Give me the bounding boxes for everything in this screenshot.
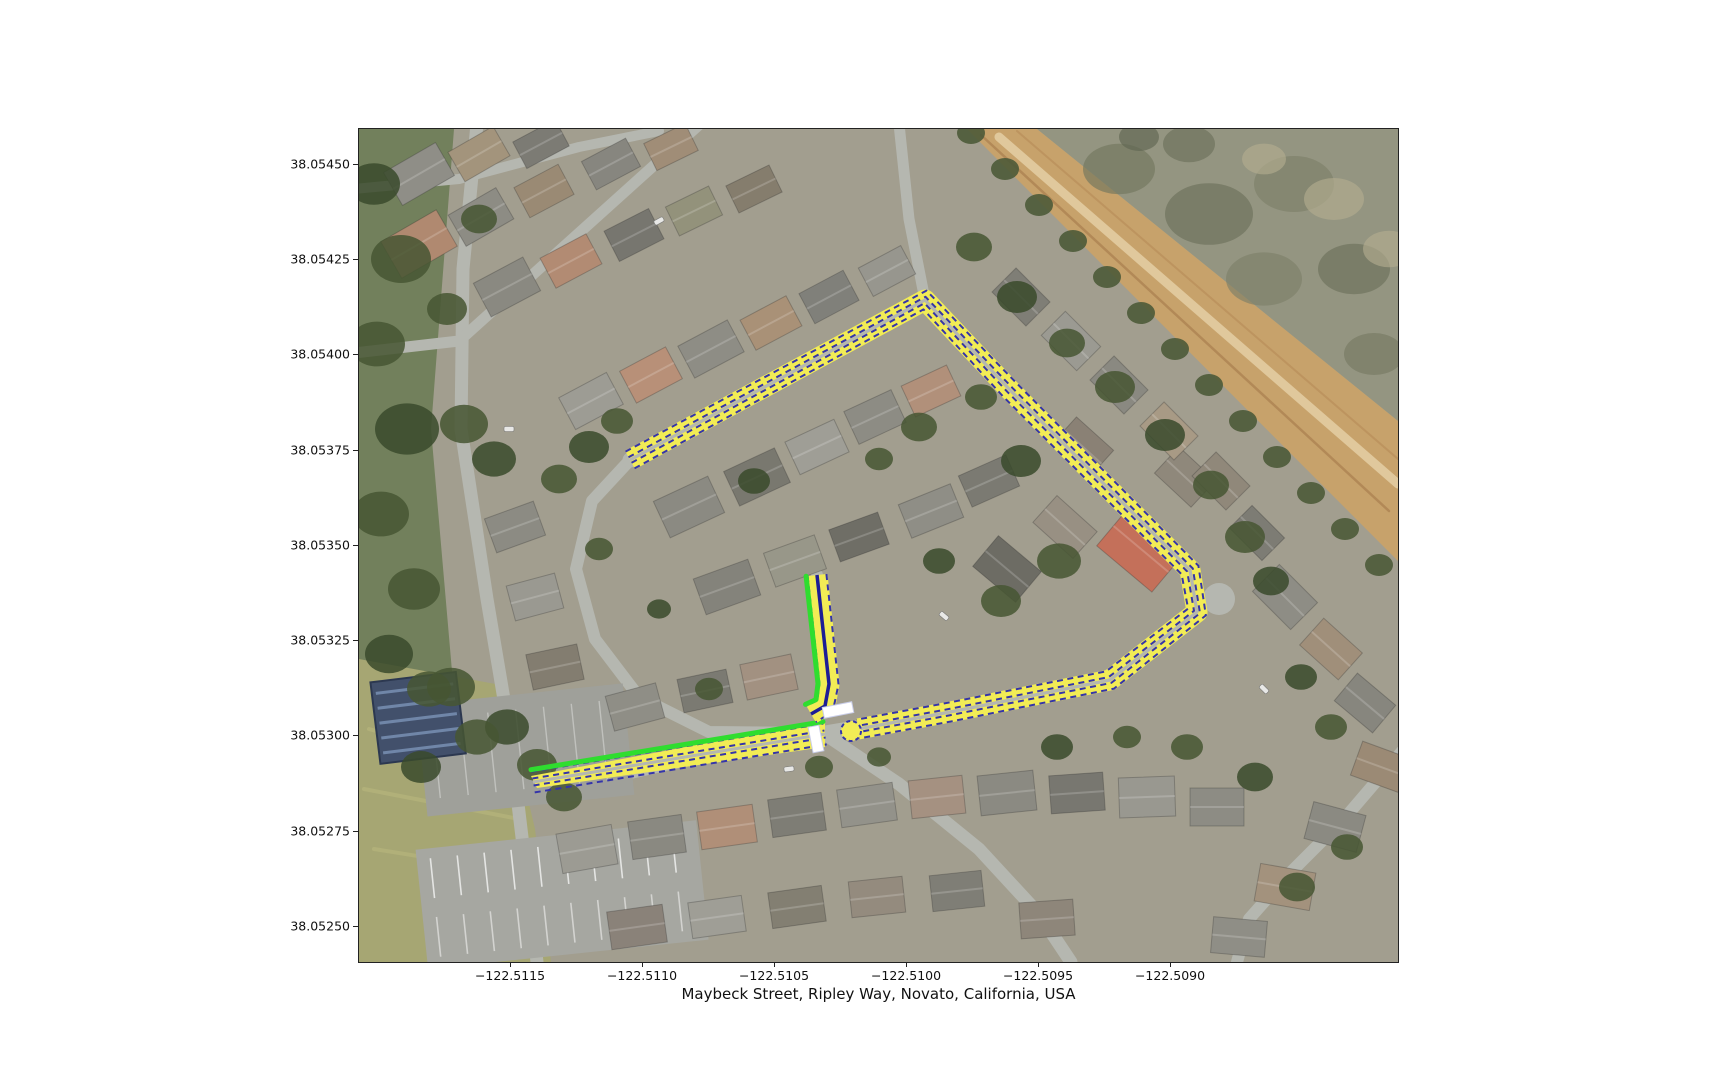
figure-canvas: −122.5115−122.5110−122.5105−122.5100−122…: [0, 0, 1714, 1080]
y-tick-label: 38.05275: [0, 824, 350, 839]
y-tick-mark: [353, 831, 358, 832]
y-tick-label: 38.05325: [0, 633, 350, 648]
x-tick-label: −122.5105: [739, 968, 809, 983]
map-plot-area: [358, 128, 1399, 963]
y-tick-mark: [353, 259, 358, 260]
y-tick-label: 38.05450: [0, 157, 350, 172]
y-tick-mark: [353, 926, 358, 927]
y-tick-mark: [353, 545, 358, 546]
x-tick-mark: [906, 962, 907, 967]
x-tick-label: −122.5090: [1135, 968, 1205, 983]
x-tick-label: −122.5115: [475, 968, 545, 983]
y-tick-label: 38.05425: [0, 252, 350, 267]
x-tick-mark: [642, 962, 643, 967]
y-tick-mark: [353, 450, 358, 451]
y-tick-label: 38.05250: [0, 919, 350, 934]
y-tick-mark: [353, 164, 358, 165]
x-tick-mark: [1038, 962, 1039, 967]
x-tick-mark: [1170, 962, 1171, 967]
y-tick-mark: [353, 640, 358, 641]
x-tick-label: −122.5100: [871, 968, 941, 983]
y-tick-mark: [353, 735, 358, 736]
x-tick-label: −122.5110: [607, 968, 677, 983]
y-tick-label: 38.05300: [0, 728, 350, 743]
x-tick-mark: [510, 962, 511, 967]
aerial-map-image: [359, 129, 1398, 962]
y-tick-label: 38.05375: [0, 443, 350, 458]
x-tick-label: −122.5095: [1003, 968, 1073, 983]
x-axis-label: Maybeck Street, Ripley Way, Novato, Cali…: [358, 985, 1399, 1003]
y-tick-mark: [353, 354, 358, 355]
y-tick-label: 38.05400: [0, 347, 350, 362]
x-tick-mark: [774, 962, 775, 967]
y-tick-label: 38.05350: [0, 538, 350, 553]
